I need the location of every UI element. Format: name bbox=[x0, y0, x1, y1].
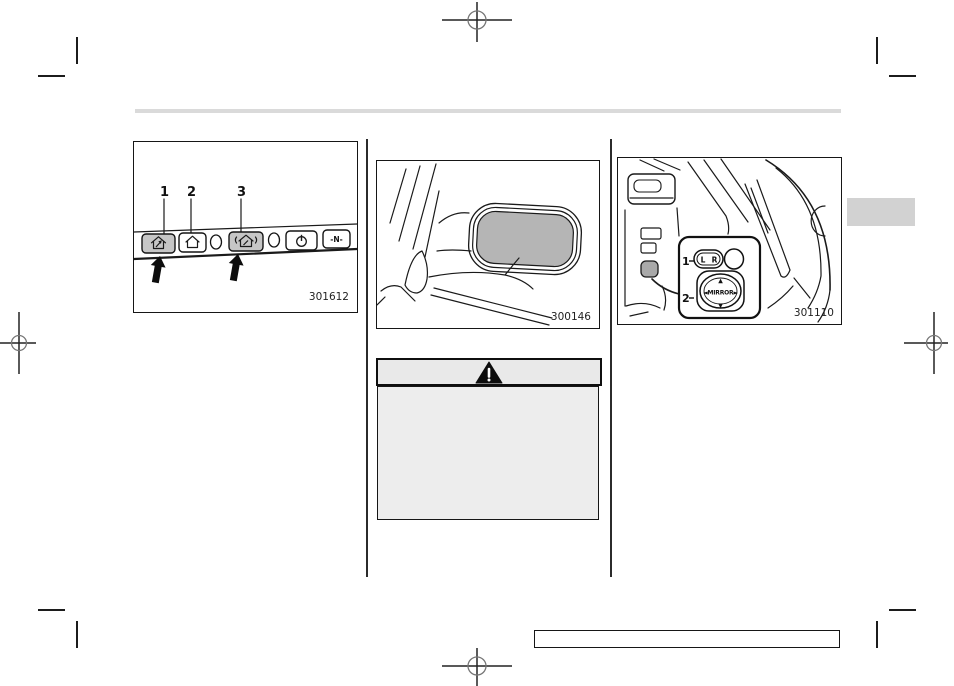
section-edge-tab bbox=[847, 198, 915, 226]
dash-hatch-lines bbox=[640, 159, 680, 171]
callout-label-1: 1 bbox=[682, 255, 690, 268]
mirror-switch-knob bbox=[641, 261, 658, 277]
homelink-button-1 bbox=[142, 234, 175, 253]
registration-mark-left bbox=[0, 310, 40, 376]
homelink-illustration: 1 2 3 bbox=[134, 142, 357, 312]
mirror-switch-illustration: 1 L R 2 ▲ ◄MIRROR► ▼ bbox=[618, 158, 841, 324]
pad-mirror-label: ◄MIRROR► bbox=[703, 289, 738, 296]
panel-button bbox=[641, 228, 661, 239]
power-button bbox=[286, 231, 317, 250]
mirror-housing bbox=[467, 202, 582, 276]
mirror-mount bbox=[437, 213, 471, 251]
figure-number: 300146 bbox=[551, 311, 591, 323]
crop-mark-top-right-h bbox=[889, 75, 916, 77]
pad-down-arrow: ▼ bbox=[718, 303, 723, 310]
pad-up-arrow: ▲ bbox=[718, 278, 723, 285]
warning-header bbox=[376, 358, 602, 386]
pillar-base bbox=[405, 251, 427, 293]
panel-button bbox=[641, 243, 656, 253]
compass-icon: -N- bbox=[330, 235, 343, 244]
column-divider-left bbox=[366, 139, 368, 577]
console-edge-top bbox=[134, 224, 357, 232]
wheel-spokes bbox=[768, 278, 810, 308]
crop-mark-top-left-v bbox=[76, 37, 78, 64]
homelink-button-2 bbox=[179, 233, 206, 252]
registration-mark-right bbox=[898, 310, 954, 376]
mirror-glass bbox=[476, 211, 575, 268]
figure-homelink-buttons: 1 2 3 bbox=[133, 141, 358, 313]
callout-label-2: 2 bbox=[682, 292, 690, 305]
crop-mark-bottom-right-v bbox=[876, 621, 878, 648]
callout-label-1: 1 bbox=[160, 185, 169, 200]
column-divider-right bbox=[610, 139, 612, 577]
indicator-light bbox=[211, 235, 222, 249]
pointer-arrow-button-3 bbox=[226, 253, 245, 282]
compass-button: -N- bbox=[323, 230, 350, 248]
warning-body bbox=[377, 386, 599, 520]
steering-wheel bbox=[766, 160, 830, 322]
door-mirror-illustration: 300146 bbox=[377, 161, 599, 328]
a-pillar-lines bbox=[425, 191, 439, 257]
manual-page: 1 2 3 bbox=[0, 0, 954, 686]
dash-diagonal-lines bbox=[688, 159, 770, 234]
selector-right-label: R bbox=[712, 256, 718, 265]
crop-mark-bottom-left-v bbox=[76, 621, 78, 648]
warning-triangle-icon bbox=[475, 361, 503, 384]
air-vent bbox=[628, 174, 675, 204]
crop-mark-bottom-left-h bbox=[38, 609, 65, 611]
vent-outline bbox=[628, 174, 675, 204]
figure-number: 301110 bbox=[794, 307, 834, 319]
pointer-arrow bbox=[226, 253, 245, 282]
crop-mark-top-right-v bbox=[876, 37, 878, 64]
figure-door-mirror: 300146 bbox=[376, 160, 600, 329]
registration-mark-top-center bbox=[432, 0, 522, 44]
homelink-button-3 bbox=[229, 232, 263, 251]
window-corner-lines bbox=[377, 286, 415, 305]
lower-dash-lines bbox=[626, 286, 666, 316]
crop-mark-top-left-h bbox=[38, 75, 65, 77]
vent-slat bbox=[634, 180, 661, 192]
indicator-light bbox=[269, 233, 280, 247]
footer-box bbox=[534, 630, 840, 648]
figure-number: 301612 bbox=[309, 291, 349, 303]
header-rule bbox=[135, 109, 841, 113]
door-sill-lines bbox=[431, 288, 552, 325]
exclamation-dot bbox=[488, 378, 491, 381]
figure-mirror-switch: 1 L R 2 ▲ ◄MIRROR► ▼ bbox=[617, 157, 842, 325]
callout-label-3: 3 bbox=[237, 185, 246, 200]
callout-label-2: 2 bbox=[187, 185, 196, 200]
wheel-rim-inner bbox=[776, 168, 830, 322]
selector-left-label: L bbox=[701, 256, 706, 265]
crop-mark-bottom-right-h bbox=[889, 609, 916, 611]
callout-leader bbox=[652, 279, 679, 294]
registration-mark-bottom-center bbox=[432, 644, 522, 686]
switch-callout: 1 L R 2 ▲ ◄MIRROR► ▼ bbox=[679, 237, 760, 318]
